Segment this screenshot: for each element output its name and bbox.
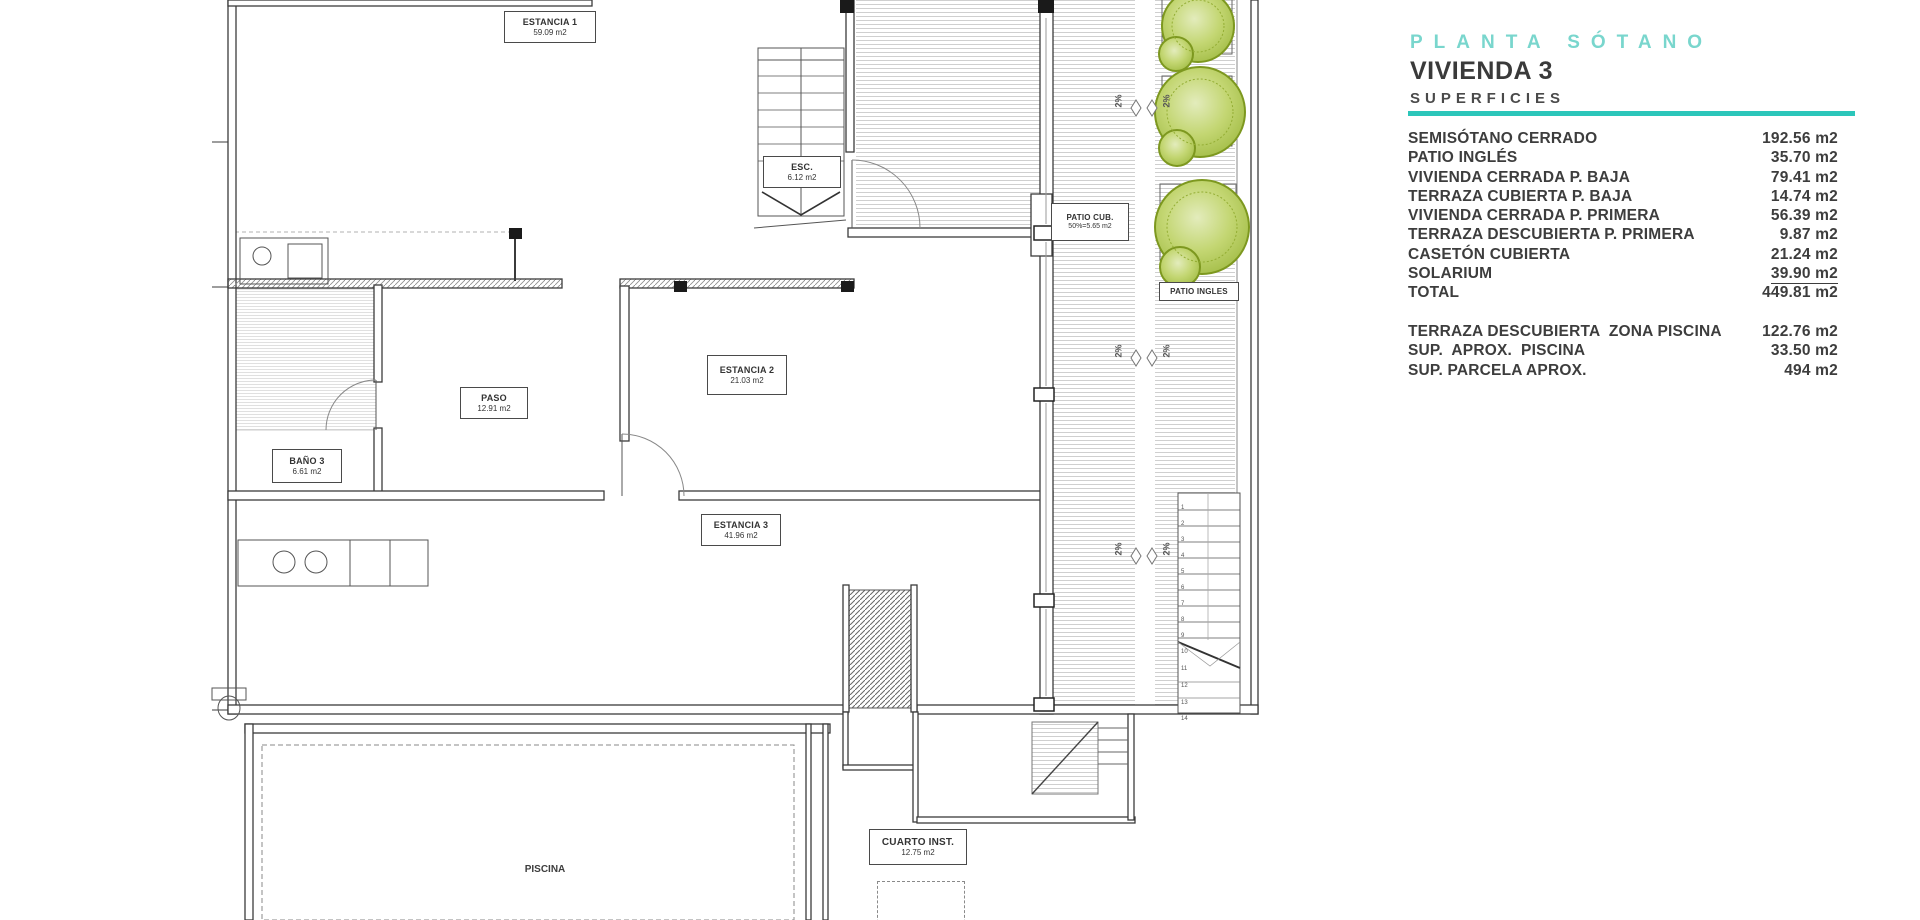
room-area: 50%=5.65 m2 bbox=[1068, 223, 1111, 231]
label-piscina: PISCINA bbox=[500, 864, 590, 875]
label-patio-ingles: PATIO INGLES bbox=[1159, 282, 1239, 301]
surface-row: VIVIENDA CERRADA P. BAJA79.41 m2 bbox=[1408, 169, 1838, 188]
interior-stair bbox=[754, 48, 846, 228]
surface-value: 79.41 m2 bbox=[1771, 169, 1838, 187]
surface-label: TERRAZA CUBIERTA P. BAJA bbox=[1408, 188, 1632, 206]
stair-tread-number: 4 bbox=[1181, 553, 1184, 559]
hatched-floors bbox=[236, 0, 1235, 794]
surface-value: 449.81 m2 bbox=[1762, 284, 1838, 302]
floor-plan-sheet: ESTANCIA 1 59.09 m2 ESC. 6.12 m2 PATIO C… bbox=[0, 0, 1920, 920]
surface-label: VIVIENDA CERRADA P. PRIMERA bbox=[1408, 207, 1660, 225]
surface-value: 35.70 m2 bbox=[1771, 149, 1838, 167]
surface-row: TERRAZA DESCUBIERTA P. PRIMERA9.87 m2 bbox=[1408, 226, 1838, 245]
surface-row: PATIO INGLÉS35.70 m2 bbox=[1408, 149, 1838, 168]
surface-label: SUP. APROX. PISCINA bbox=[1408, 342, 1585, 360]
slope-label: 2% bbox=[1162, 344, 1172, 357]
landing-steps bbox=[1098, 728, 1128, 764]
surface-row: TOTAL449.81 m2 bbox=[1408, 284, 1838, 303]
surface-value: 192.56 m2 bbox=[1762, 130, 1838, 148]
slope-label: 2% bbox=[1114, 344, 1124, 357]
surface-value: 33.50 m2 bbox=[1771, 342, 1838, 360]
surface-row: SEMISÓTANO CERRADO192.56 m2 bbox=[1408, 130, 1838, 149]
stair-tread-number: 11 bbox=[1181, 666, 1187, 672]
surface-label: SUP. PARCELA APROX. bbox=[1408, 362, 1587, 380]
room-area: 6.12 m2 bbox=[788, 173, 817, 182]
surface-label: SOLARIUM bbox=[1408, 265, 1492, 283]
room-area: 12.75 m2 bbox=[901, 848, 934, 857]
stair-tread-number: 12 bbox=[1181, 683, 1188, 689]
room-name: ESTANCIA 2 bbox=[720, 365, 775, 375]
surface-label: SEMISÓTANO CERRADO bbox=[1408, 130, 1597, 148]
slope-label: 2% bbox=[1114, 542, 1124, 555]
room-name: BAÑO 3 bbox=[289, 456, 324, 466]
superficies-table: SEMISÓTANO CERRADO192.56 m2PATIO INGLÉS3… bbox=[1408, 130, 1838, 304]
surface-value: 39.90 m2 bbox=[1771, 265, 1838, 284]
stair-tread-number: 7 bbox=[1181, 601, 1184, 607]
surface-row: CASETÓN CUBIERTA21.24 m2 bbox=[1408, 246, 1838, 265]
stair-tread-number: 1 bbox=[1181, 505, 1184, 511]
surface-row: SOLARIUM39.90 m2 bbox=[1408, 265, 1838, 284]
room-area: 21.03 m2 bbox=[730, 376, 763, 385]
stair-tread-number: 6 bbox=[1181, 585, 1184, 591]
surface-label: TERRAZA DESCUBIERTA P. PRIMERA bbox=[1408, 226, 1695, 244]
surface-label: TOTAL bbox=[1408, 284, 1459, 302]
surface-value: 122.76 m2 bbox=[1762, 323, 1838, 341]
stair-tread-number: 10 bbox=[1181, 649, 1188, 655]
room-label-estancia2: ESTANCIA 2 21.03 m2 bbox=[707, 355, 787, 395]
room-name: ESC. bbox=[791, 162, 813, 172]
room-label-esc: ESC. 6.12 m2 bbox=[763, 156, 841, 188]
surface-row: SUP. PARCELA APROX.494 m2 bbox=[1408, 362, 1838, 381]
surface-row: TERRAZA DESCUBIERTA ZONA PISCINA122.76 m… bbox=[1408, 323, 1838, 342]
room-label-cuarto-inst: CUARTO INST. 12.75 m2 bbox=[869, 829, 967, 865]
surface-row: SUP. APROX. PISCINA33.50 m2 bbox=[1408, 342, 1838, 361]
surface-label: CASETÓN CUBIERTA bbox=[1408, 246, 1570, 264]
exterior-stair bbox=[1178, 493, 1240, 713]
room-name: CUARTO INST. bbox=[882, 837, 954, 849]
stair-tread-number: 13 bbox=[1181, 700, 1188, 706]
stair-tread-number: 5 bbox=[1181, 569, 1184, 575]
surface-label: TERRAZA DESCUBIERTA ZONA PISCINA bbox=[1408, 323, 1722, 341]
surface-value: 494 m2 bbox=[1784, 362, 1838, 380]
room-name: ESTANCIA 3 bbox=[714, 520, 769, 530]
slope-label: 2% bbox=[1162, 94, 1172, 107]
stair-tread-number: 9 bbox=[1181, 633, 1184, 639]
room-name: PATIO CUB. bbox=[1066, 213, 1113, 222]
room-area: 59.09 m2 bbox=[533, 28, 566, 37]
surface-value: 21.24 m2 bbox=[1771, 246, 1838, 264]
room-label-bano3: BAÑO 3 6.61 m2 bbox=[272, 449, 342, 483]
room-name: ESTANCIA 1 bbox=[523, 17, 578, 27]
room-label-estancia3: ESTANCIA 3 41.96 m2 bbox=[701, 514, 781, 546]
room-label-paso: PASO 12.91 m2 bbox=[460, 387, 528, 419]
surface-value: 14.74 m2 bbox=[1771, 188, 1838, 206]
unit-title: VIVIENDA 3 bbox=[1410, 57, 1553, 86]
surface-row: TERRAZA CUBIERTA P. BAJA14.74 m2 bbox=[1408, 188, 1838, 207]
label-maqu: MAQU. bbox=[877, 881, 965, 920]
slope-label: 2% bbox=[1114, 94, 1124, 107]
surface-label: VIVIENDA CERRADA P. BAJA bbox=[1408, 169, 1630, 187]
room-name: PASO bbox=[481, 393, 507, 403]
stair-tread-number: 3 bbox=[1181, 537, 1184, 543]
surface-label: PATIO INGLÉS bbox=[1408, 149, 1517, 167]
room-area: 12.91 m2 bbox=[477, 404, 510, 413]
area-name: PATIO INGLES bbox=[1170, 287, 1228, 296]
surface-value: 56.39 m2 bbox=[1771, 207, 1838, 225]
section-title: SUPERFICIES bbox=[1410, 90, 1565, 107]
accent-divider bbox=[1408, 111, 1855, 116]
stair-tread-number: 8 bbox=[1181, 617, 1184, 623]
room-label-estancia1: ESTANCIA 1 59.09 m2 bbox=[504, 11, 596, 43]
slope-label: 2% bbox=[1162, 542, 1172, 555]
room-label-patio-cub: PATIO CUB. 50%=5.65 m2 bbox=[1051, 203, 1129, 241]
superficies-extra-table: TERRAZA DESCUBIERTA ZONA PISCINA122.76 m… bbox=[1408, 323, 1838, 381]
plan-title: PLANTA SÓTANO bbox=[1410, 32, 1713, 54]
room-area: 41.96 m2 bbox=[724, 531, 757, 540]
stair-tread-number: 2 bbox=[1181, 521, 1184, 527]
stair-tread-number: 14 bbox=[1181, 716, 1188, 722]
surface-row: VIVIENDA CERRADA P. PRIMERA56.39 m2 bbox=[1408, 207, 1838, 226]
surface-value: 9.87 m2 bbox=[1780, 226, 1838, 244]
room-area: 6.61 m2 bbox=[293, 467, 322, 476]
